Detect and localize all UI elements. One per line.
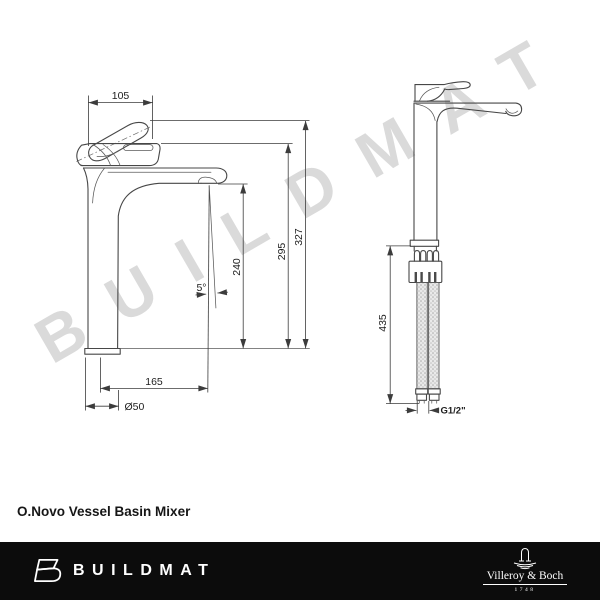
front-housing: [81, 144, 160, 166]
buildmat-wordmark: BUILDMAT: [73, 562, 215, 580]
spec-sheet: BUILDMAT: [0, 0, 600, 600]
dim-outlet-height: 240: [218, 184, 248, 349]
dim-handle-width-label: 105: [112, 90, 130, 102]
brand-year: 1748: [483, 587, 567, 593]
dim-spout-reach: 165: [100, 358, 207, 393]
brand-rule: [483, 584, 567, 585]
front-column-right: [118, 183, 201, 348]
side-lever: [415, 82, 470, 90]
front-aerator: [198, 177, 216, 183]
dim-spout-reach-label: 165: [145, 376, 163, 388]
braided-hose-left: [417, 283, 427, 389]
dim-outlet-height-label: 240: [231, 258, 243, 276]
dim-connection-thread-label: G1/2": [441, 405, 466, 416]
dim-hose-length-label: 435: [377, 314, 389, 332]
dim-hose-length: 435: [377, 246, 419, 404]
buildmat-logo: BUILDMAT: [30, 557, 215, 584]
dim-spout-height-label: 295: [276, 243, 288, 261]
dim-spout-angle: 5°: [196, 186, 228, 393]
collar-prongs: [414, 251, 438, 262]
mounting-ring: [410, 240, 438, 246]
front-spout: [84, 168, 227, 183]
footer-bar: BUILDMAT Villeroy & Boch 1748: [0, 542, 600, 600]
product-title: O.Novo Vessel Basin Mixer: [17, 504, 190, 519]
dim-base-diameter-label: Ø50: [125, 401, 145, 413]
dim-handle-width: 105: [88, 90, 152, 146]
side-view: 435 G1/2": [377, 82, 522, 417]
dim-overall-height-label: 327: [293, 228, 305, 246]
front-column-left: [84, 168, 89, 349]
villeroy-boch-logo: Villeroy & Boch 1748: [483, 546, 567, 593]
villeroy-boch-icon: [508, 546, 542, 570]
dim-spout-angle-label: 5°: [196, 282, 206, 294]
technical-drawing: 105 327 295 240: [0, 0, 600, 540]
brand-name: Villeroy & Boch: [483, 570, 567, 583]
braided-hose-right: [429, 283, 439, 389]
hose-fittings: [416, 389, 441, 404]
side-column: [414, 103, 437, 240]
front-view: 105 327 295 240: [77, 90, 310, 413]
dim-overall-height: 327: [150, 121, 310, 349]
dim-base-diameter: Ø50: [85, 358, 144, 414]
hose-collar: [409, 261, 442, 282]
buildmat-logo-icon: [30, 557, 62, 584]
front-base-plate: [85, 349, 120, 355]
